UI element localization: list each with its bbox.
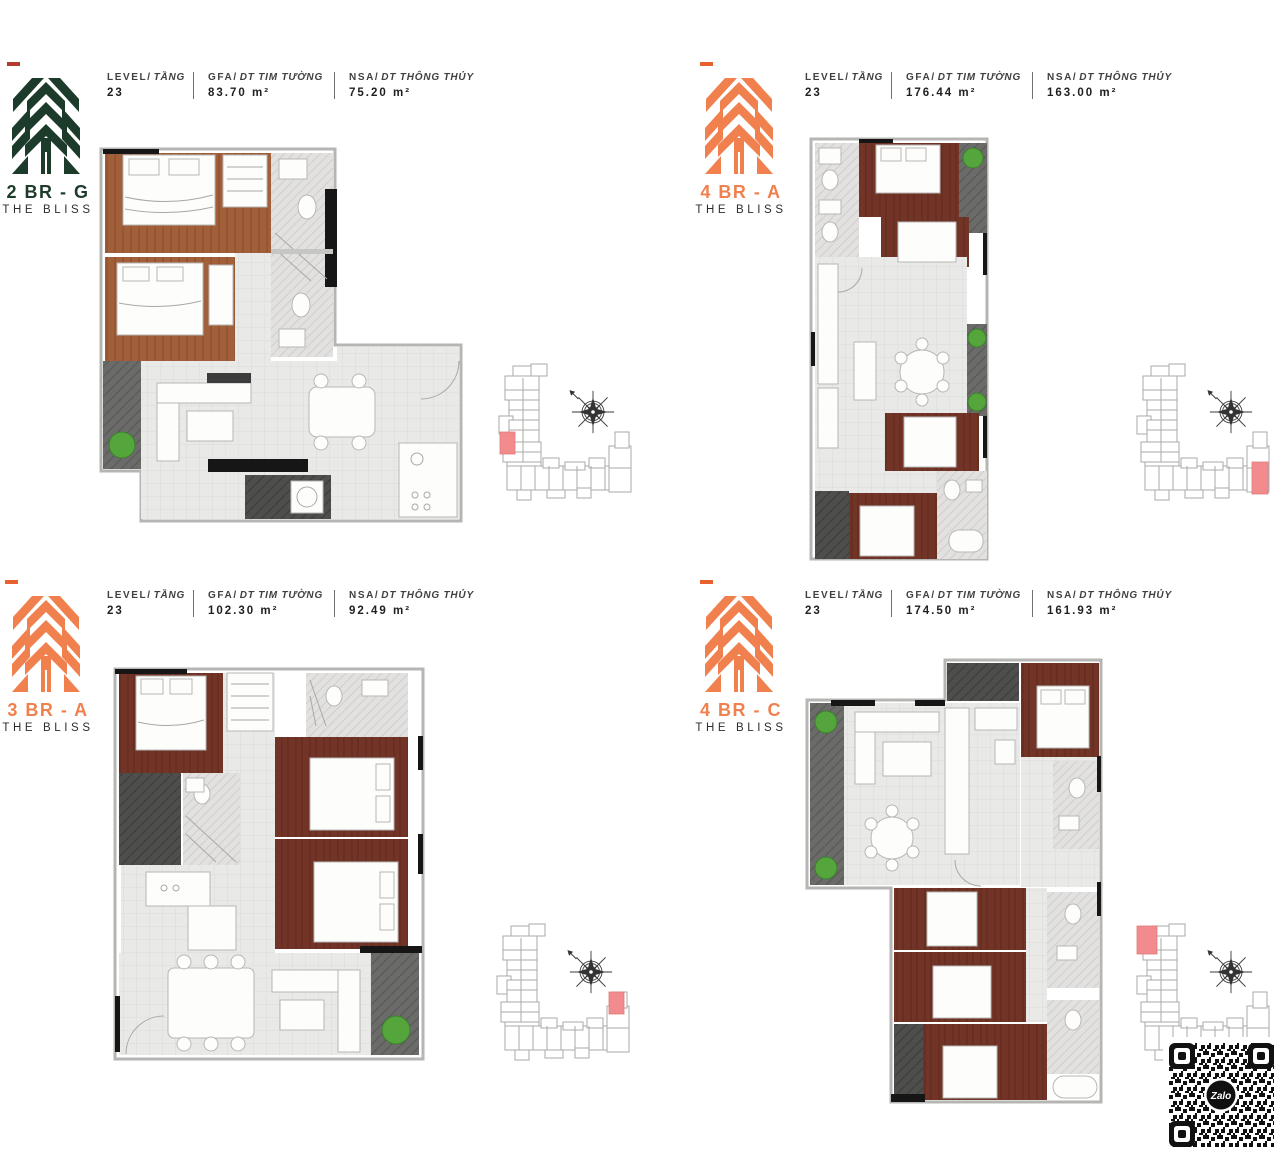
balcony-area bbox=[815, 491, 849, 559]
bathroom-area bbox=[1053, 761, 1099, 849]
qr-code: Zalo bbox=[1163, 1037, 1280, 1153]
level-value: 23 bbox=[107, 605, 179, 617]
info-level: LEVEL/TẦNG 23 bbox=[805, 72, 892, 99]
unit-name: 4 BR - C bbox=[693, 700, 789, 721]
info-gfa: GFA/DT TIM TƯỜNG 102.30 m² bbox=[208, 590, 335, 617]
gfa-value: 83.70 m² bbox=[208, 87, 320, 99]
key-plan bbox=[487, 362, 637, 514]
utility-area bbox=[947, 663, 1019, 701]
logo-accent-dash bbox=[7, 62, 20, 66]
unit-info-bar: LEVEL/TẦNG 23 GFA/DT TIM TƯỜNG 83.70 m² … bbox=[107, 72, 501, 99]
storage-area bbox=[119, 773, 181, 865]
brand-logo-icon bbox=[701, 76, 777, 176]
project-name: THE BLISS bbox=[693, 722, 789, 734]
compass-icon bbox=[569, 390, 614, 433]
key-plan-highlight bbox=[500, 432, 515, 454]
compass-icon bbox=[567, 950, 612, 993]
project-name: THE BLISS bbox=[0, 204, 96, 216]
project-name: THE BLISS bbox=[0, 722, 96, 734]
brand-logo-icon bbox=[701, 594, 777, 694]
level-value: 23 bbox=[107, 87, 179, 99]
floor-plan-3br-a bbox=[110, 666, 430, 1066]
compass-icon bbox=[1207, 950, 1252, 993]
level-value: 23 bbox=[805, 87, 877, 99]
gfa-value: 174.50 m² bbox=[906, 605, 1018, 617]
info-nsa: NSA/DT THÔNG THỦY 161.93 m² bbox=[1047, 590, 1185, 617]
unit-info-bar: LEVEL/TẦNG 23 GFA/DT TIM TƯỜNG 176.44 m²… bbox=[805, 72, 1199, 99]
key-plan bbox=[1125, 362, 1275, 514]
gfa-label: GFA/ bbox=[208, 72, 238, 83]
key-plan bbox=[485, 922, 635, 1074]
unit-name: 3 BR - A bbox=[0, 700, 96, 721]
zalo-label: Zalo bbox=[1210, 1091, 1232, 1102]
key-plan-highlight bbox=[1252, 462, 1268, 494]
floor-plan-2br-g bbox=[95, 145, 467, 527]
floor-plan-4br-a bbox=[806, 136, 992, 562]
unit-name: 4 BR - A bbox=[693, 182, 789, 203]
bathroom-area bbox=[306, 673, 408, 737]
key-plan-highlight bbox=[609, 992, 624, 1014]
nsa-label: NSA/ bbox=[349, 72, 379, 83]
brand-logo-icon bbox=[8, 594, 84, 694]
logo-accent-dash bbox=[5, 580, 18, 584]
info-level: LEVEL/TẦNG 23 bbox=[805, 590, 892, 617]
unit-info-bar: LEVEL/TẦNG 23 GFA/DT TIM TƯỜNG 102.30 m²… bbox=[107, 590, 501, 617]
info-nsa: NSA/DT THÔNG THỦY 92.49 m² bbox=[349, 590, 487, 617]
gfa-value: 102.30 m² bbox=[208, 605, 320, 617]
info-nsa: NSA/DT THÔNG THỦY 75.20 m² bbox=[349, 72, 487, 99]
info-gfa: GFA/DT TIM TƯỜNG 176.44 m² bbox=[906, 72, 1033, 99]
logo-accent-dash bbox=[700, 62, 713, 66]
info-level: LEVEL/TẦNG 23 bbox=[107, 72, 194, 99]
floor-plan-4br-c bbox=[795, 656, 1117, 1106]
bathroom-area bbox=[271, 153, 333, 357]
logo-accent-dash bbox=[700, 580, 713, 584]
nsa-label-vn: DT THÔNG THỦY bbox=[381, 72, 474, 83]
level-value: 23 bbox=[805, 605, 877, 617]
info-gfa: GFA/DT TIM TƯỜNG 83.70 m² bbox=[208, 72, 335, 99]
nsa-value: 92.49 m² bbox=[349, 605, 473, 617]
project-name: THE BLISS bbox=[693, 204, 789, 216]
gfa-value: 176.44 m² bbox=[906, 87, 1018, 99]
level-label: LEVEL/ bbox=[107, 72, 152, 83]
page: 2 BR - G THE BLISS LEVEL/TẦNG 23 GFA/DT … bbox=[0, 0, 1280, 1153]
brand-logo-icon bbox=[8, 76, 84, 176]
level-label-vn: TẦNG bbox=[154, 72, 186, 83]
balcony-area bbox=[894, 1024, 923, 1100]
gfa-label-vn: DT TIM TƯỜNG bbox=[240, 72, 323, 83]
key-plan-highlight bbox=[1137, 926, 1157, 954]
info-nsa: NSA/DT THÔNG THỦY 163.00 m² bbox=[1047, 72, 1185, 99]
nsa-value: 163.00 m² bbox=[1047, 87, 1171, 99]
info-gfa: GFA/DT TIM TƯỜNG 174.50 m² bbox=[906, 590, 1033, 617]
nsa-value: 161.93 m² bbox=[1047, 605, 1171, 617]
unit-name: 2 BR - G bbox=[0, 182, 96, 203]
info-level: LEVEL/TẦNG 23 bbox=[107, 590, 194, 617]
nsa-value: 75.20 m² bbox=[349, 87, 473, 99]
unit-info-bar: LEVEL/TẦNG 23 GFA/DT TIM TƯỜNG 174.50 m²… bbox=[805, 590, 1199, 617]
compass-icon bbox=[1207, 390, 1252, 433]
